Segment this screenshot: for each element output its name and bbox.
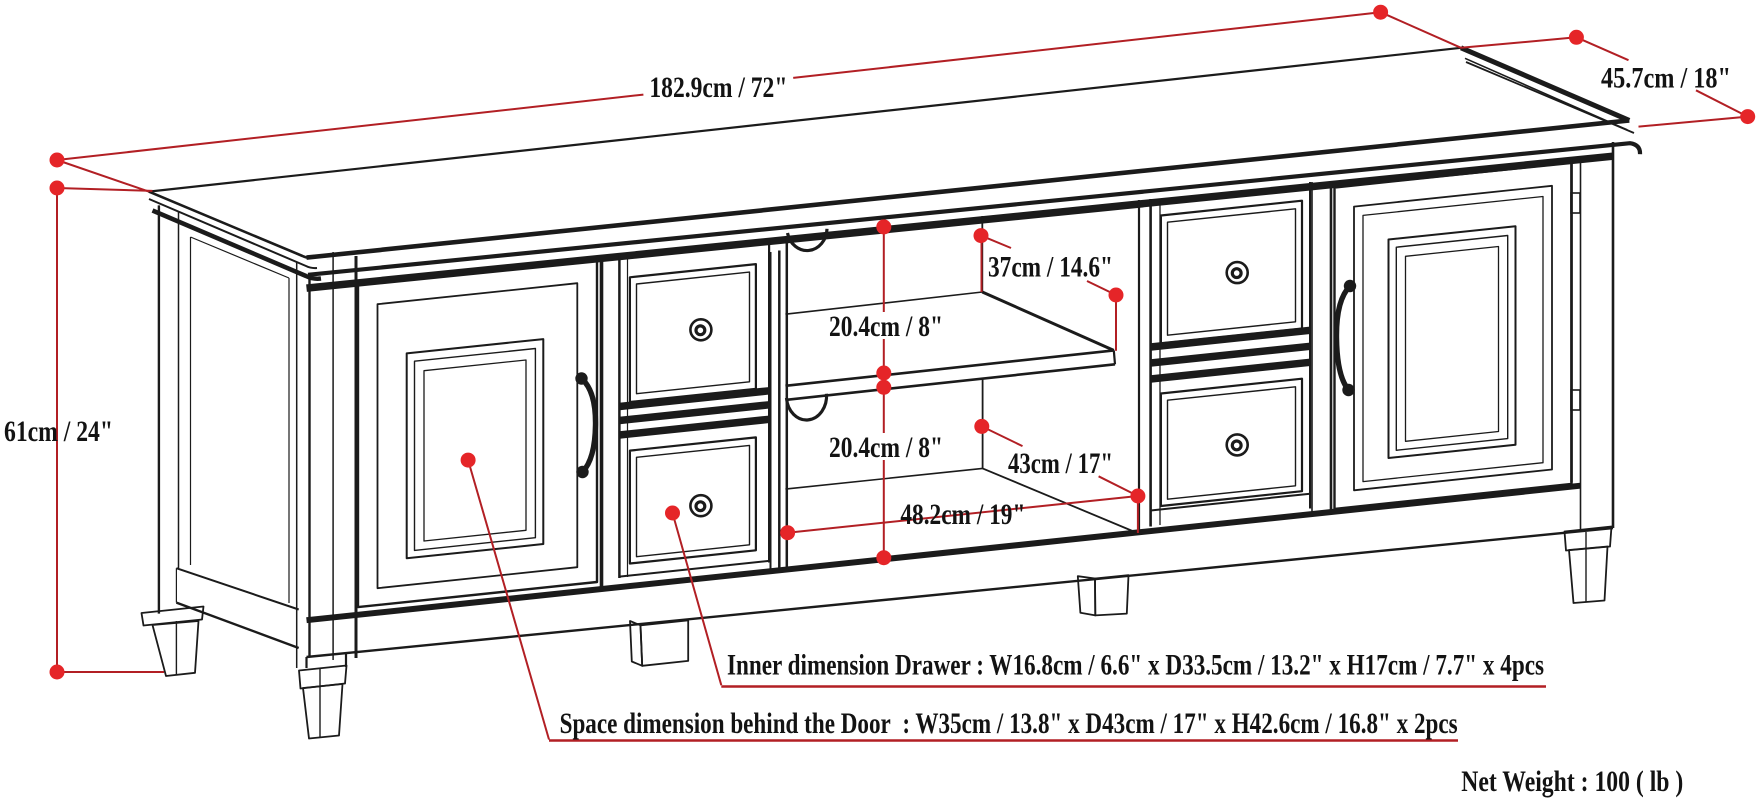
svg-text:Net Weight : 100 ( lb ): Net Weight : 100 ( lb ): [1461, 765, 1683, 798]
svg-text:20.4cm / 8": 20.4cm / 8": [829, 310, 943, 343]
svg-text:37cm / 14.6": 37cm / 14.6": [988, 251, 1113, 284]
svg-text:43cm / 17": 43cm / 17": [1008, 447, 1113, 480]
svg-text:61cm / 24": 61cm / 24": [4, 415, 113, 448]
svg-text:Space dimension behind the Doo: Space dimension behind the Door : W35cm …: [560, 707, 1458, 740]
svg-text:48.2cm / 19": 48.2cm / 19": [900, 498, 1025, 531]
svg-text:20.4cm / 8": 20.4cm / 8": [829, 431, 943, 464]
svg-text:182.9cm / 72": 182.9cm / 72": [649, 71, 787, 104]
svg-text:Inner dimension Drawer : W16.8: Inner dimension Drawer : W16.8cm / 6.6" …: [727, 649, 1544, 682]
svg-text:45.7cm / 18": 45.7cm / 18": [1601, 62, 1731, 95]
